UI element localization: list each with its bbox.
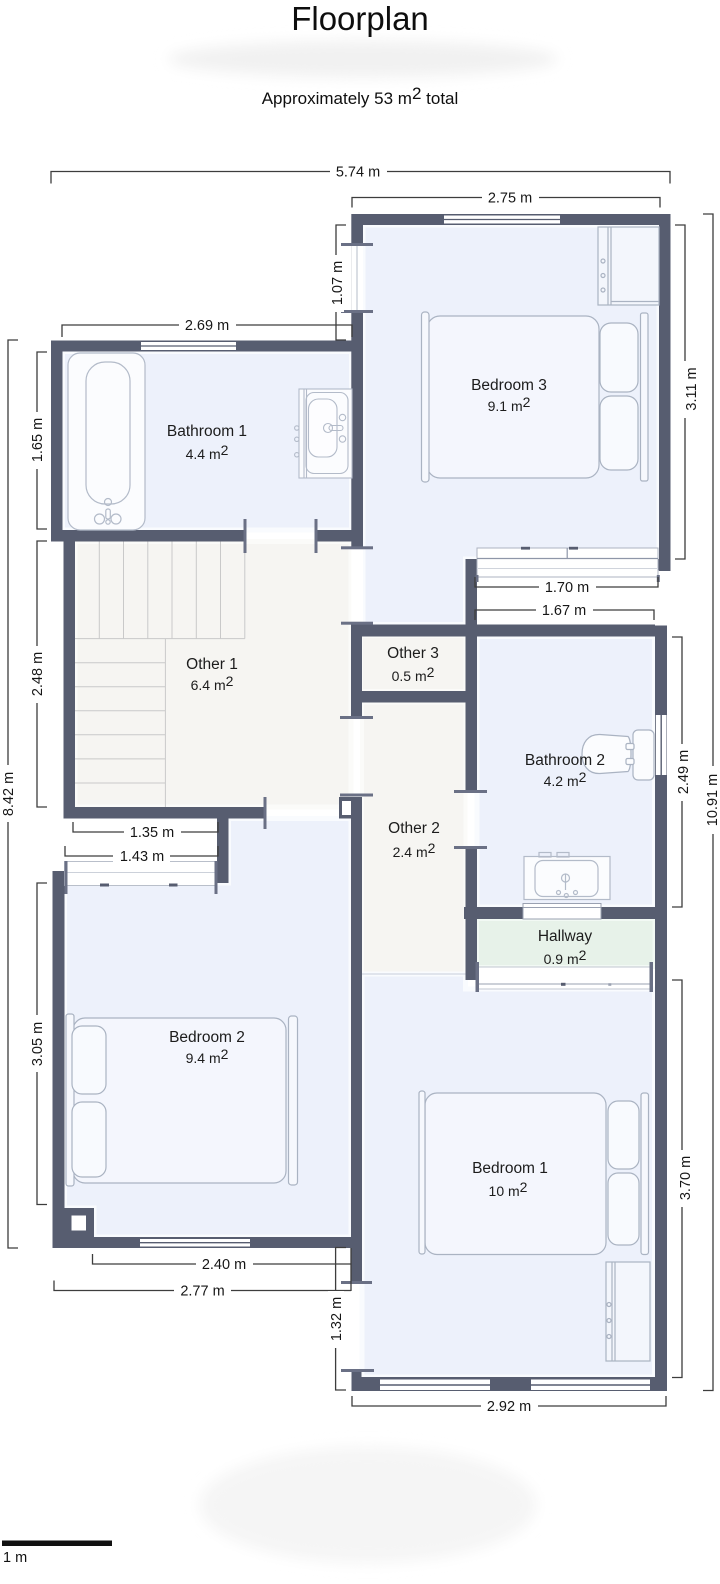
svg-text:1.67 m: 1.67 m [542,603,586,619]
svg-text:1.65 m: 1.65 m [30,418,46,462]
svg-text:Bedroom 3: Bedroom 3 [471,377,547,394]
svg-text:5.74 m: 5.74 m [336,165,380,181]
svg-text:8.42 m: 8.42 m [1,772,17,816]
svg-text:Bedroom 1: Bedroom 1 [472,1160,548,1177]
svg-text:Hallway: Hallway [538,928,593,945]
svg-text:2.40 m: 2.40 m [202,1257,246,1273]
svg-text:1.07 m: 1.07 m [330,261,346,305]
svg-text:2.69 m: 2.69 m [185,318,229,334]
svg-text:1.32 m: 1.32 m [329,1297,345,1341]
svg-text:2.77 m: 2.77 m [180,1284,224,1300]
svg-text:2.48 m: 2.48 m [30,652,46,696]
svg-text:1 m: 1 m [3,1550,27,1566]
svg-text:Bathroom 1: Bathroom 1 [167,423,247,440]
svg-text:Other 2: Other 2 [388,820,440,837]
svg-text:2.92 m: 2.92 m [487,1399,531,1415]
svg-text:1.43 m: 1.43 m [120,849,164,865]
svg-text:3.11 m: 3.11 m [684,367,700,410]
svg-text:2.75 m: 2.75 m [488,191,532,207]
svg-text:Other 1: Other 1 [186,656,238,673]
svg-text:2.49 m: 2.49 m [676,750,692,794]
svg-text:3.05 m: 3.05 m [30,1022,46,1066]
svg-text:Other 3: Other 3 [387,645,439,662]
svg-text:Bedroom 2: Bedroom 2 [169,1029,245,1046]
svg-text:1.35 m: 1.35 m [130,825,174,841]
svg-text:1.70 m: 1.70 m [545,580,589,596]
svg-text:10.91 m: 10.91 m [705,774,720,826]
svg-text:3.70 m: 3.70 m [678,1156,694,1200]
svg-text:Bathroom 2: Bathroom 2 [525,752,605,769]
svg-text:Floorplan: Floorplan [291,0,429,37]
